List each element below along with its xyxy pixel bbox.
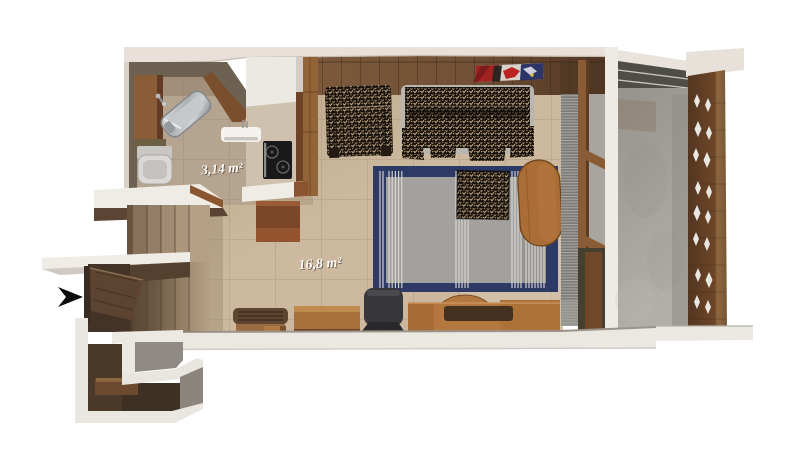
svg-text:16,8 m²: 16,8 m² (298, 255, 343, 273)
svg-text:3,14 m²: 3,14 m² (200, 160, 244, 178)
